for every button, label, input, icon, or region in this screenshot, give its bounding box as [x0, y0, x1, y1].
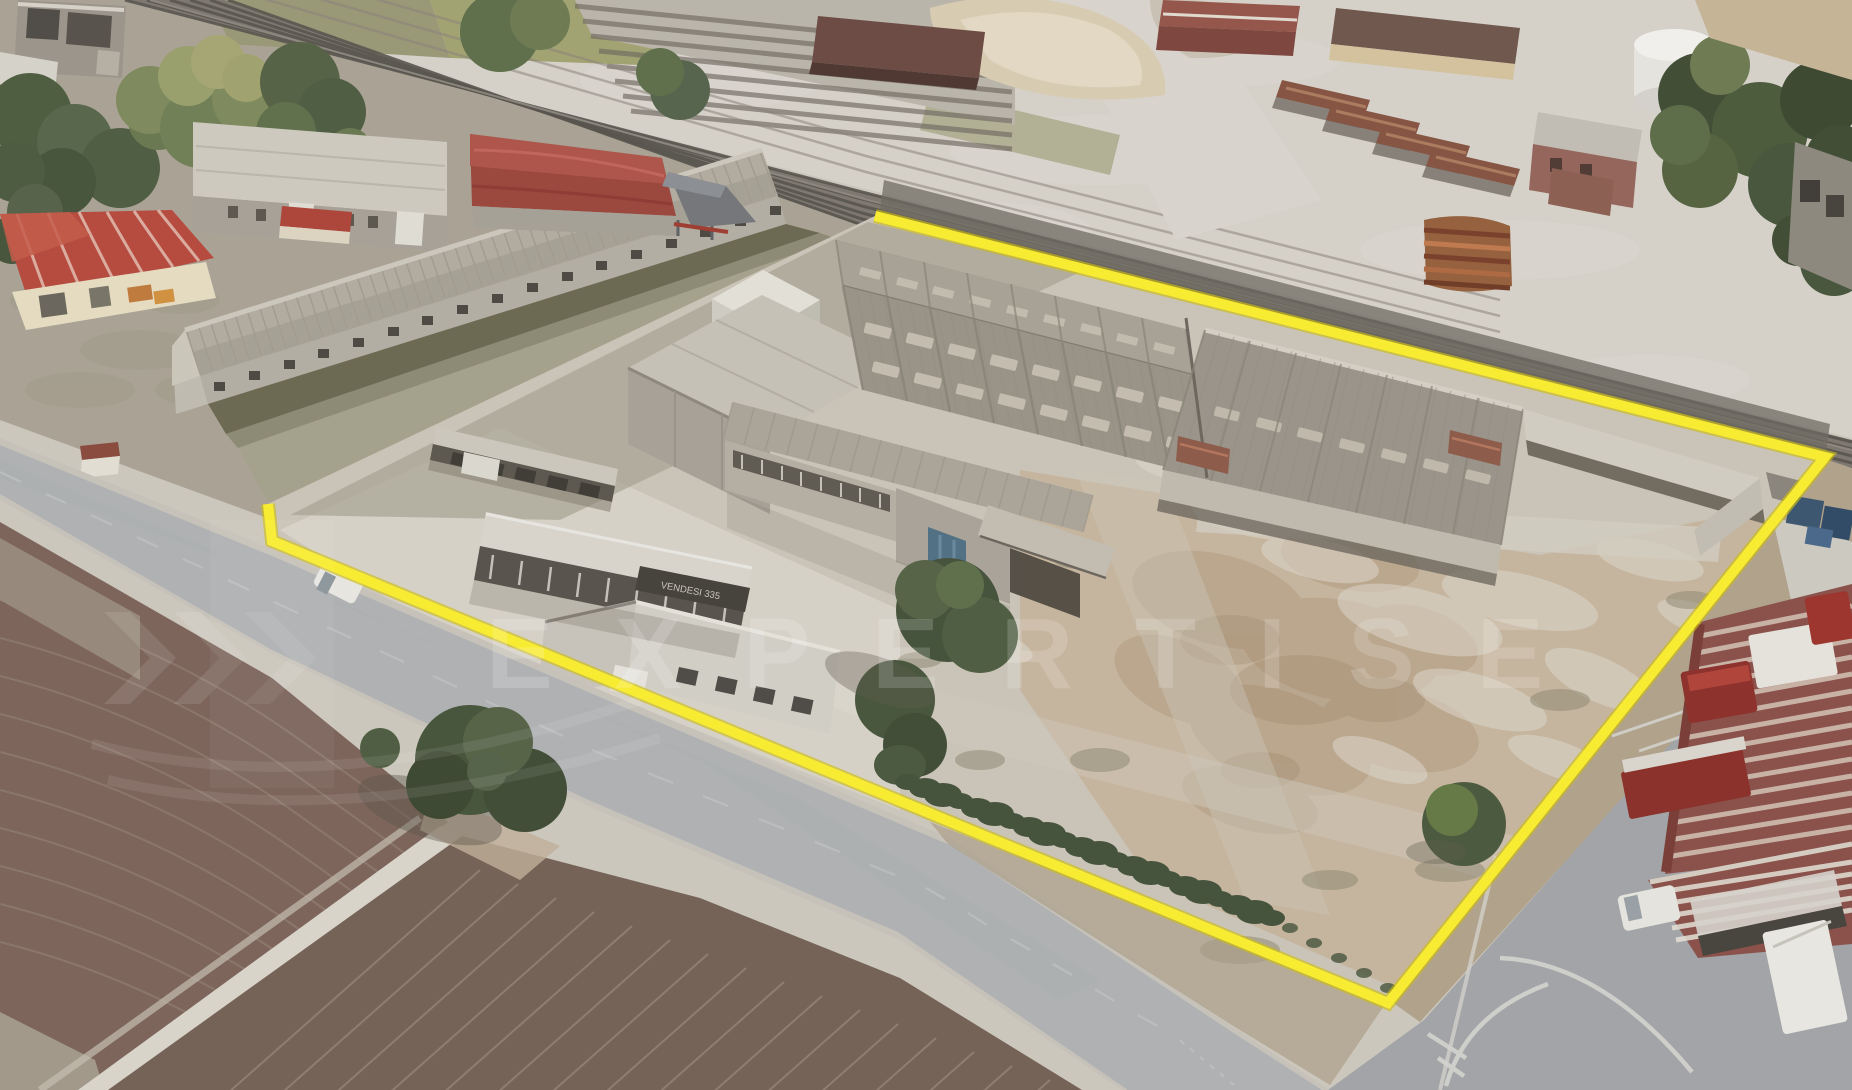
- svg-text:EXPERTISE: EXPERTISE: [486, 598, 1605, 710]
